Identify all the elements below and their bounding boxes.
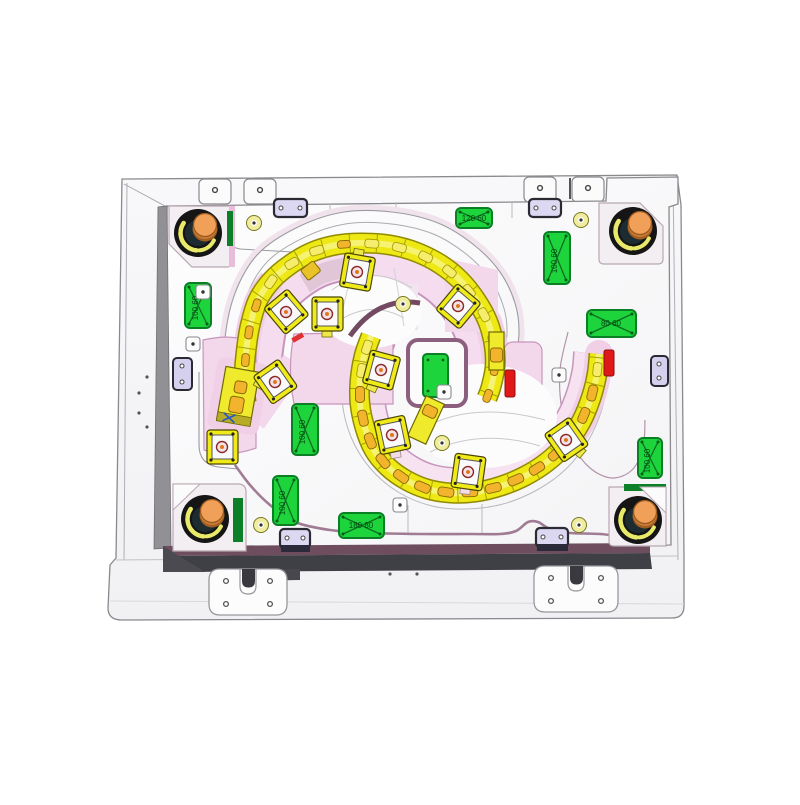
svg-text:80 60: 80 60 bbox=[601, 319, 622, 328]
svg-text:180 80: 180 80 bbox=[349, 521, 374, 530]
svg-text:100 60: 100 60 bbox=[643, 448, 652, 473]
svg-text:100 60: 100 60 bbox=[278, 490, 287, 515]
svg-text:120 60: 120 60 bbox=[462, 214, 487, 223]
svg-text:100 60: 100 60 bbox=[298, 419, 307, 444]
svg-text:100 60: 100 60 bbox=[550, 248, 559, 273]
